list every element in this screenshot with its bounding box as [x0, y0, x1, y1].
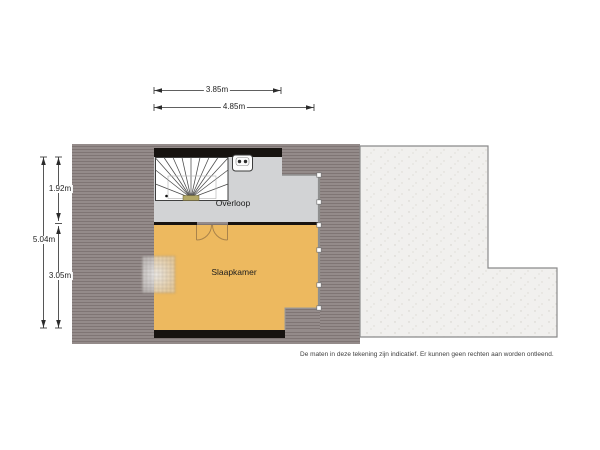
- room-label-overloop: Overloop: [216, 199, 251, 208]
- dim-label-slaapkamer-depth: 3.05m: [47, 272, 73, 280]
- room-label-slaapkamer: Slaapkamer: [211, 268, 256, 277]
- roof-notch-patch: [285, 308, 320, 330]
- dim-label-overloop-depth: 1.92m: [47, 185, 73, 193]
- dim-label-total-depth: 5.04m: [31, 236, 57, 244]
- roof-corner-patch: [282, 157, 320, 175]
- wall-divider-right: [228, 222, 321, 225]
- flat-roof-area: [360, 146, 557, 337]
- wall-bottom: [154, 330, 285, 338]
- dim-label-overloop-width: 3.85m: [204, 86, 230, 94]
- floorplan-canvas: 3.85m 4.85m 1.92m 5.04m 3.05m Overloop S…: [0, 0, 600, 450]
- disclaimer-text: De maten in deze tekening zijn indicatie…: [300, 352, 554, 359]
- roof-window-icon: [142, 256, 175, 293]
- wall-top: [154, 148, 282, 157]
- dim-label-total-width: 4.85m: [221, 103, 247, 111]
- wall-divider-left: [154, 222, 197, 225]
